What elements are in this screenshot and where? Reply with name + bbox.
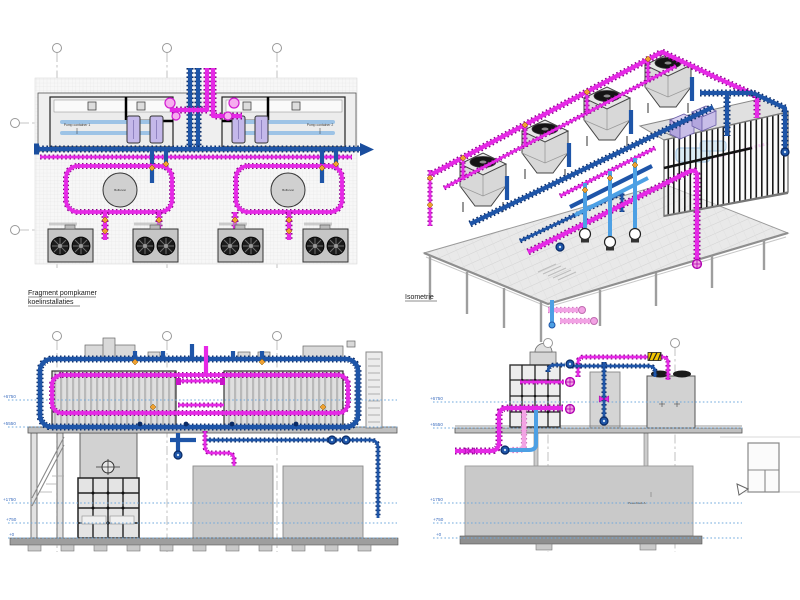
buffer-tank-2: Buffervat — [271, 173, 305, 207]
section-left-caption-line1: Fragment pompkamer — [28, 290, 98, 297]
ground-slab — [10, 538, 398, 545]
engineering-drawing: Pomp container 1 Pomp container 2 — [0, 0, 800, 600]
grid-bubble-icon — [671, 339, 680, 348]
pipe-end-cap — [34, 144, 39, 155]
level-label: +6750 — [3, 394, 16, 399]
level-label: +6750 — [430, 396, 443, 401]
level-label: +750 — [433, 517, 444, 522]
grid-bubble-icon — [163, 44, 172, 53]
grid-bubble-icon — [11, 226, 20, 235]
pomp-container-2: Pomp container 2 — [222, 97, 345, 147]
ribbed-unit — [224, 371, 343, 426]
section-left-caption-line2: koelinstallaties — [28, 299, 74, 306]
pomp-container-1: Pomp container 1 — [50, 97, 173, 147]
crate-structure — [78, 478, 139, 538]
isometric-caption: Isometrie — [405, 294, 434, 301]
cooler-elevation — [647, 371, 695, 429]
buffer-tank-1: Buffervat — [103, 173, 137, 207]
equipment-block — [283, 466, 363, 538]
buffer-tank-label: Buffervat — [114, 188, 126, 192]
grid-bubble-icon — [544, 339, 553, 348]
level-label: +1750 — [3, 497, 16, 502]
grid-bubble-icon — [163, 332, 172, 341]
powerblock — [465, 466, 693, 536]
ribbed-unit — [52, 371, 176, 426]
pomp-container-2-label: Pomp container 2 — [307, 123, 334, 127]
buffer-tank-label: Buffervat — [282, 188, 294, 192]
grid-bubble-icon — [273, 332, 282, 341]
bim-drawing-sheet: Pomp container 1 Pomp container 2 — [0, 0, 800, 600]
level-label: +1750 — [430, 497, 443, 502]
level-label: +750 — [6, 517, 17, 522]
grid-bubble-icon — [273, 44, 282, 53]
level-label: +5550 — [3, 421, 16, 426]
level-label: +5550 — [430, 422, 443, 427]
grid-bubble-icon — [11, 119, 20, 128]
grid-bubble-icon — [53, 332, 62, 341]
level-label: +0 — [9, 532, 15, 537]
equipment-block — [193, 466, 273, 538]
pomp-container-1-label: Pomp container 1 — [64, 123, 91, 127]
grid-bubble-icon — [53, 44, 62, 53]
access-ladder — [366, 352, 382, 428]
level-label: +0 — [436, 532, 442, 537]
